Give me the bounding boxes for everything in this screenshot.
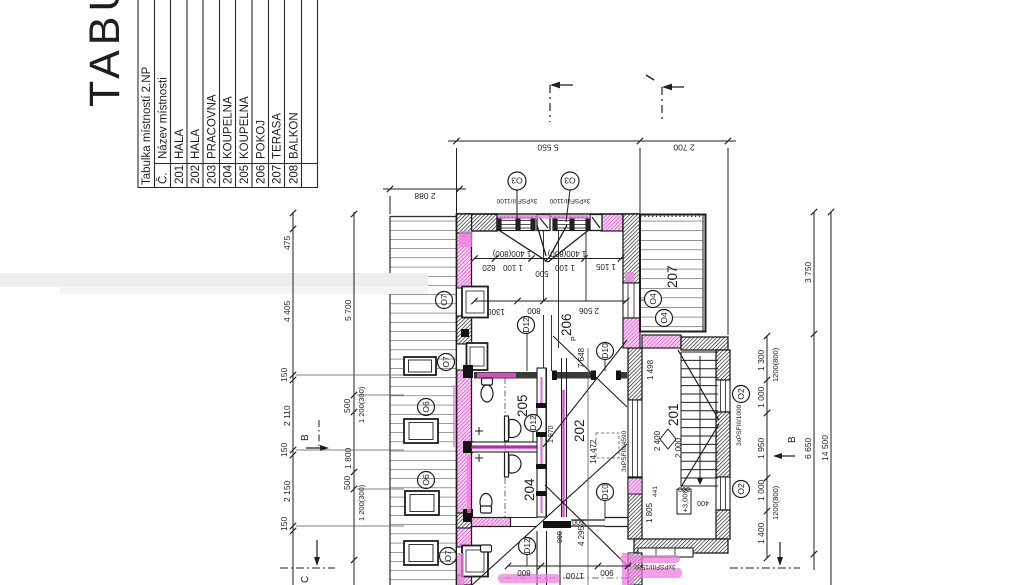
svg-text:5 550: 5 550 <box>537 143 559 153</box>
svg-text:4 295: 4 295 <box>577 525 586 546</box>
svg-text:1 000: 1 000 <box>756 386 766 408</box>
svg-text:3 750: 3 750 <box>803 261 813 283</box>
svg-text:Č.: Č. <box>157 173 170 185</box>
svg-text:2 150: 2 150 <box>282 480 292 502</box>
svg-text:D12: D12 <box>528 415 538 431</box>
svg-text:1200(800): 1200(800) <box>771 347 780 382</box>
svg-text:1700: 1700 <box>566 571 584 580</box>
svg-text:202: 202 <box>190 165 202 184</box>
svg-text:O4: O4 <box>659 312 669 324</box>
svg-text:500: 500 <box>572 518 584 525</box>
svg-text:7 648: 7 648 <box>577 347 586 368</box>
svg-text:1 100: 1 100 <box>554 263 575 272</box>
svg-text:O7: O7 <box>443 550 453 562</box>
svg-text:TERASA: TERASA <box>272 113 284 159</box>
svg-text:205: 205 <box>239 165 251 184</box>
svg-text:1 200(300): 1 200(300) <box>357 484 366 521</box>
svg-text:PRACOVNA: PRACOVNA <box>207 94 219 159</box>
svg-text:O7: O7 <box>441 356 451 368</box>
svg-text:400: 400 <box>697 499 709 506</box>
svg-text:500: 500 <box>535 269 549 278</box>
svg-text:1 400(800): 1 400(800) <box>492 249 531 258</box>
svg-text:D10: D10 <box>600 484 610 500</box>
svg-text:2 400: 2 400 <box>653 430 662 451</box>
svg-text:204: 204 <box>522 478 537 501</box>
svg-text:14 500: 14 500 <box>820 435 830 461</box>
svg-text:202: 202 <box>572 419 587 442</box>
svg-text:205: 205 <box>515 394 530 417</box>
svg-text:1 400(800): 1 400(800) <box>547 249 586 258</box>
svg-text:Tabulka místností 2.NP: Tabulka místností 2.NP <box>141 66 153 185</box>
svg-text:TABU: TABU <box>81 0 129 107</box>
svg-text:1 970: 1 970 <box>548 425 555 443</box>
svg-text:1 300: 1 300 <box>756 349 766 371</box>
svg-text:800: 800 <box>527 306 541 315</box>
svg-text:O3: O3 <box>564 176 576 186</box>
svg-text:HALA: HALA <box>174 129 186 159</box>
svg-text:208: 208 <box>289 165 301 184</box>
svg-text:206: 206 <box>559 313 574 336</box>
svg-text:1 200(300): 1 200(300) <box>357 386 366 423</box>
svg-text:2 110: 2 110 <box>282 405 292 426</box>
svg-text:3xPSFIII/1000: 3xPSFIII/1000 <box>736 404 743 446</box>
svg-text:P: P <box>571 336 578 341</box>
svg-text:1 000: 1 000 <box>756 479 766 501</box>
svg-text:441: 441 <box>652 486 659 497</box>
svg-text:KOUPELNA: KOUPELNA <box>239 96 251 159</box>
svg-text:C: C <box>300 576 311 583</box>
svg-text:900: 900 <box>600 568 614 577</box>
svg-text:O7: O7 <box>439 294 449 306</box>
svg-text:990: 990 <box>557 531 564 543</box>
svg-text:500: 500 <box>678 485 690 492</box>
svg-text:D12: D12 <box>522 538 532 554</box>
svg-text:3xPSFIII/1100: 3xPSFIII/1100 <box>496 197 537 204</box>
svg-text:B: B <box>300 434 311 441</box>
svg-text:2 506: 2 506 <box>578 306 599 315</box>
svg-text:4 405: 4 405 <box>282 300 292 322</box>
svg-text:201: 201 <box>666 403 681 426</box>
svg-text:150: 150 <box>279 443 289 457</box>
svg-text:203: 203 <box>207 165 219 184</box>
svg-text:O6: O6 <box>421 474 431 486</box>
svg-text:206: 206 <box>256 165 268 184</box>
svg-text:O4: O4 <box>648 293 658 305</box>
svg-text:5 700: 5 700 <box>343 299 353 321</box>
svg-text:KOUPELNA: KOUPELNA <box>223 96 235 159</box>
svg-text:500: 500 <box>342 476 352 490</box>
svg-text:500: 500 <box>342 399 352 413</box>
svg-text:207: 207 <box>665 265 680 288</box>
svg-text:1 105: 1 105 <box>595 262 616 271</box>
svg-text:800: 800 <box>517 568 531 577</box>
svg-text:1 950: 1 950 <box>756 437 766 459</box>
svg-text:POKOJ: POKOJ <box>256 120 268 159</box>
svg-text:2 088: 2 088 <box>414 191 436 201</box>
svg-text:B: B <box>787 436 798 443</box>
svg-text:620: 620 <box>482 263 496 272</box>
svg-text:O2: O2 <box>736 483 746 495</box>
svg-text:1 498: 1 498 <box>646 359 655 380</box>
svg-text:150: 150 <box>279 368 289 382</box>
svg-text:1 400: 1 400 <box>756 522 766 544</box>
svg-text:1200(800): 1200(800) <box>771 485 780 520</box>
svg-text:2 000: 2 000 <box>674 437 683 458</box>
svg-text:2 700: 2 700 <box>673 143 695 153</box>
svg-text:204: 204 <box>223 164 235 184</box>
svg-text:207: 207 <box>272 165 284 184</box>
svg-text:D12: D12 <box>521 317 531 333</box>
svg-text:Název místnosti: Název místnosti <box>158 77 170 159</box>
svg-text:3xPSFIII/4590: 3xPSFIII/4590 <box>621 430 628 472</box>
svg-text:1 100: 1 100 <box>502 263 523 272</box>
svg-text:O2: O2 <box>736 388 746 400</box>
svg-text:O6: O6 <box>421 401 431 413</box>
svg-text:BALKON: BALKON <box>289 112 301 159</box>
svg-text:14 472: 14 472 <box>589 439 598 464</box>
svg-text:1300: 1300 <box>487 307 505 316</box>
svg-text:O3: O3 <box>511 176 523 186</box>
svg-text:150: 150 <box>279 517 289 531</box>
svg-text:201: 201 <box>174 165 186 184</box>
svg-text:1 800: 1 800 <box>343 447 353 469</box>
svg-text:6 650: 6 650 <box>803 437 813 459</box>
svg-text:D10: D10 <box>600 343 610 359</box>
svg-text:1 805: 1 805 <box>645 502 654 523</box>
svg-text:3xPSFIII/1500: 3xPSFIII/1500 <box>634 563 676 570</box>
svg-text:475: 475 <box>282 236 292 250</box>
svg-text:3xPSFIII/1100: 3xPSFIII/1100 <box>549 197 590 204</box>
svg-text:HALA: HALA <box>190 129 202 159</box>
